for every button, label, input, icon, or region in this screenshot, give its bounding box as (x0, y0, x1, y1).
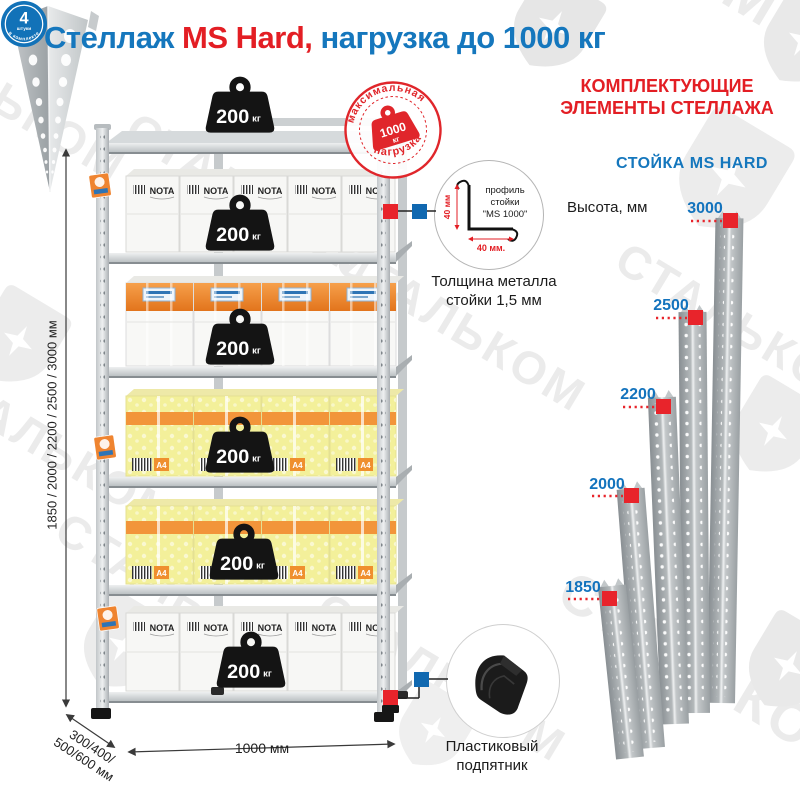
post-height-label-2200: 2200 (617, 386, 659, 404)
rack-height-options-label: 1850 / 2000 / 2200 / 2500 / 3000 мм (45, 320, 60, 529)
post-height-label-2500: 2500 (650, 297, 692, 315)
weight-200kg-icon: 200кг (207, 631, 295, 693)
profile-connector-blue-square (412, 204, 427, 219)
plastic-foot-caption: Пластиковый подпятник (416, 737, 568, 775)
post-3000 (707, 211, 744, 703)
post-subheading: СТОЙКА MS HARD (592, 155, 792, 173)
svg-text:4: 4 (19, 10, 28, 28)
infographic-canvas: СТАЛЬКОМ СТАЛЬКОМ СТАЛЬКОМ СТАЛЬКОМ СТАЛ… (0, 0, 800, 800)
page-title: Стеллаж MS Hard, нагрузка до 1000 кг (44, 20, 605, 56)
rack-width-label: 1000 мм (235, 740, 289, 756)
weight-200kg-icon: 200кг (196, 194, 284, 256)
post-height-label-1850: 1850 (562, 579, 604, 597)
title-model: MS Hard, (174, 20, 312, 55)
height-axis-label: Высота, мм (567, 199, 647, 216)
foot-connector-blue-square (414, 672, 429, 687)
profile-connector-red-square (383, 204, 398, 219)
post-height-label-2000: 2000 (586, 476, 628, 494)
weight-200kg-icon: 200кг (196, 76, 284, 138)
title-load: нагрузка до 1000 кг (312, 20, 605, 55)
weight-200kg-icon: 200кг (196, 416, 284, 478)
weight-200kg-icon: 200кг (196, 308, 284, 370)
foot-connector-red-square (383, 690, 398, 705)
quantity-badge: в комплекте 4 штуки (0, 0, 48, 48)
svg-text:штуки: штуки (17, 27, 31, 32)
title-product-word: Стеллаж (44, 20, 174, 55)
components-heading: КОМПЛЕКТУЮЩИЕ ЭЛЕМЕНТЫ СТЕЛЛАЖА (560, 75, 774, 119)
thickness-note: Толщина металла стойки 1,5 мм (418, 272, 570, 310)
post-height-label-3000: 3000 (684, 200, 726, 218)
weight-200kg-icon: 200кг (200, 523, 288, 585)
